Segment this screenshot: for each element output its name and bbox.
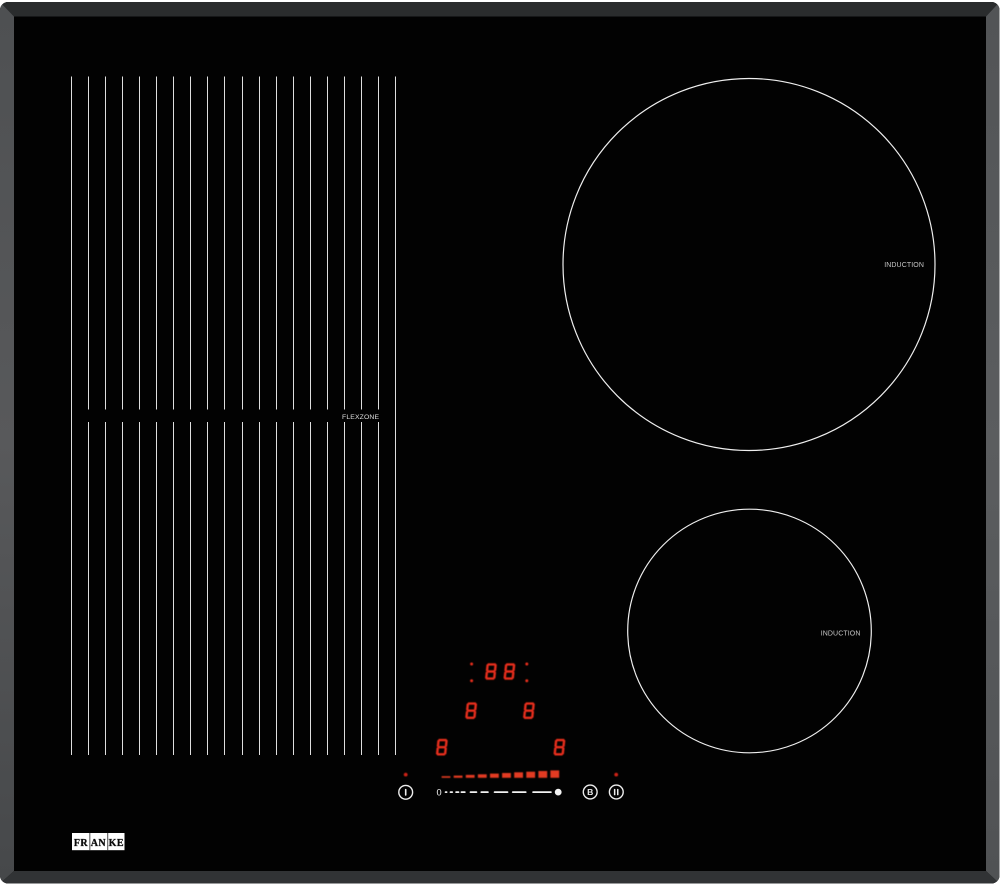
svg-text:KE: KE: [109, 838, 124, 849]
svg-text:AN: AN: [91, 838, 107, 849]
svg-text:INDUCTION: INDUCTION: [821, 630, 861, 637]
svg-text:INDUCTION: INDUCTION: [884, 262, 924, 269]
svg-text:B: B: [587, 787, 593, 797]
svg-text:FR: FR: [74, 838, 89, 849]
svg-text:FLEXZONE: FLEXZONE: [342, 414, 379, 421]
svg-text:0: 0: [437, 787, 442, 797]
